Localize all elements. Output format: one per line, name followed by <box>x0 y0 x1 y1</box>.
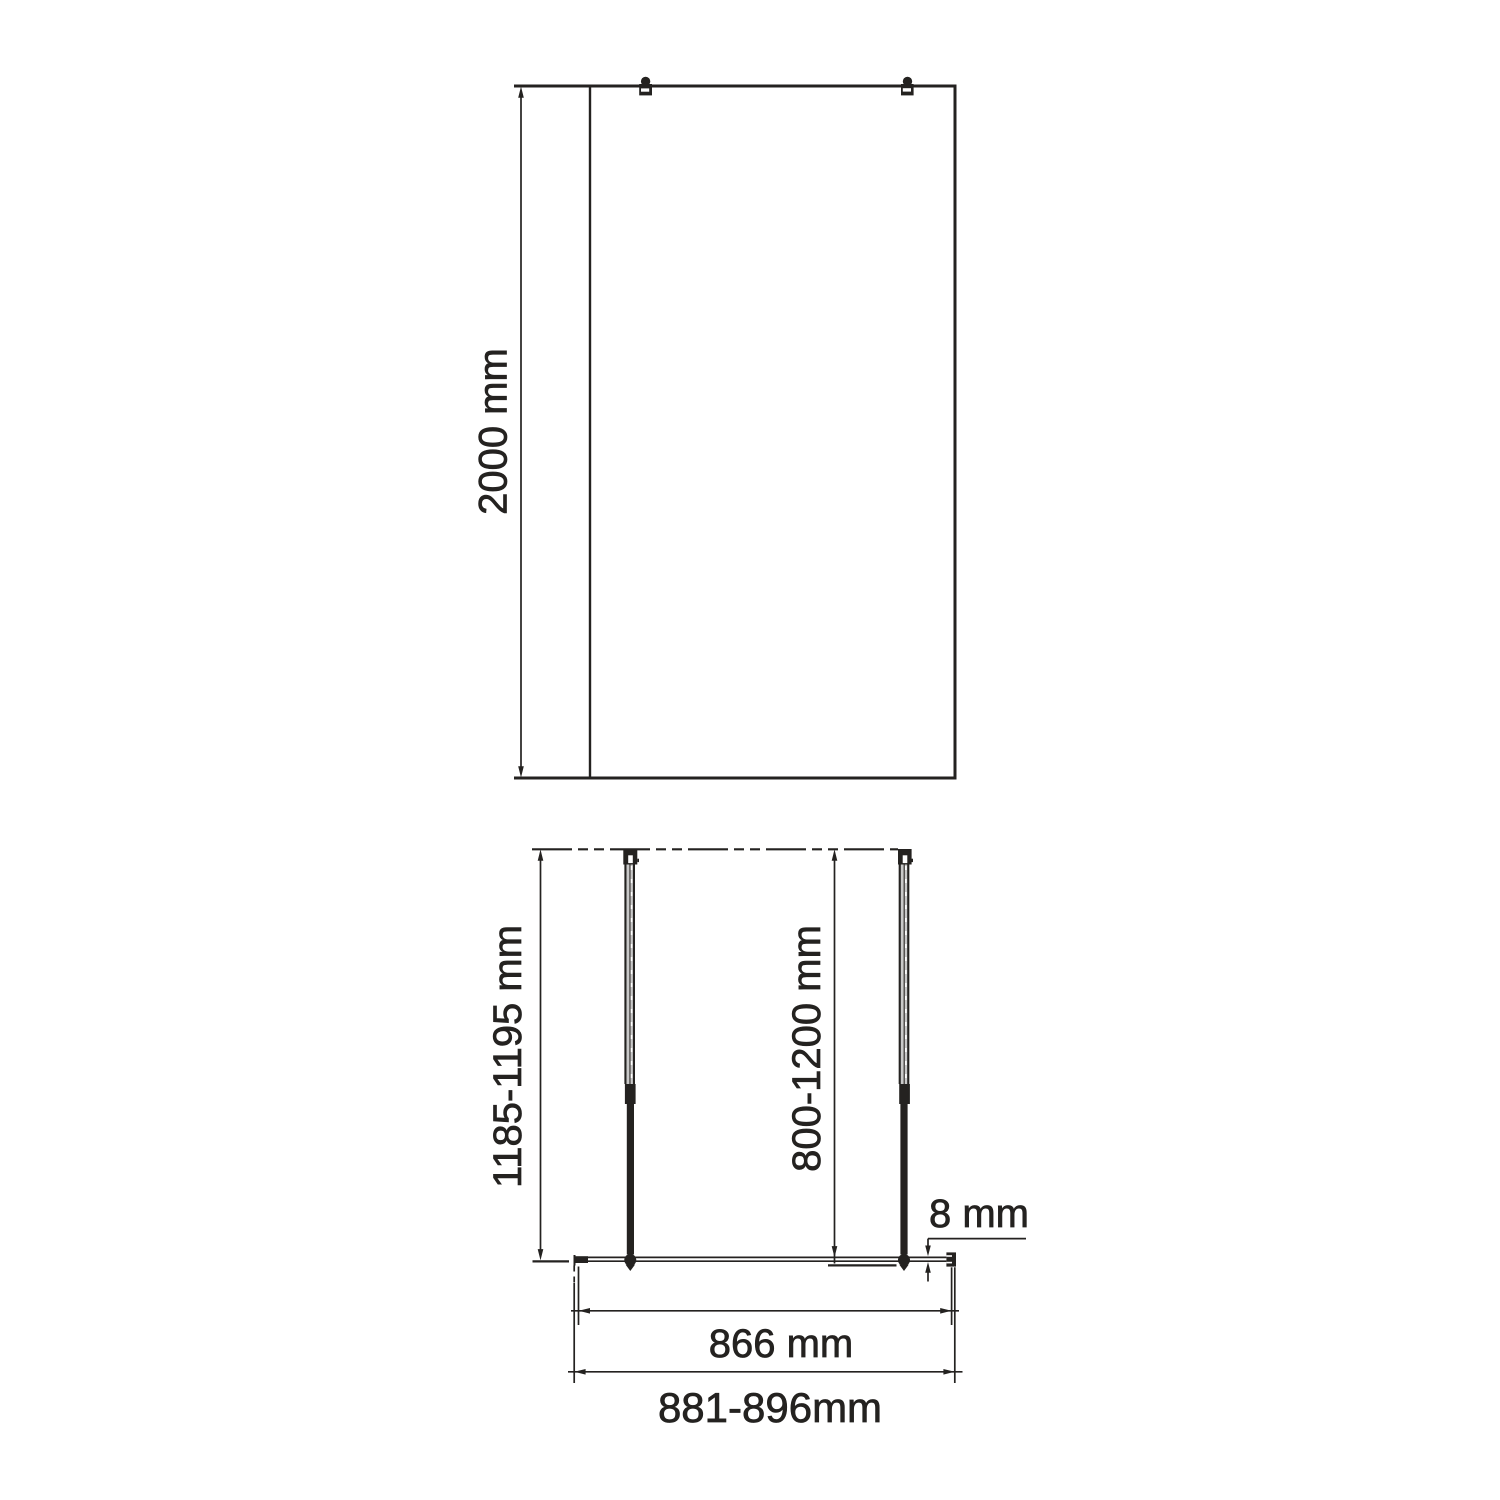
svg-text:866 mm: 866 mm <box>709 1322 854 1366</box>
svg-text:2000 mm: 2000 mm <box>472 348 516 515</box>
svg-text:1185-1195 mm: 1185-1195 mm <box>486 925 530 1188</box>
svg-text:881-896mm: 881-896mm <box>658 1384 882 1431</box>
svg-text:800-1200 mm: 800-1200 mm <box>785 925 829 1172</box>
svg-text:8 mm: 8 mm <box>929 1192 1029 1236</box>
